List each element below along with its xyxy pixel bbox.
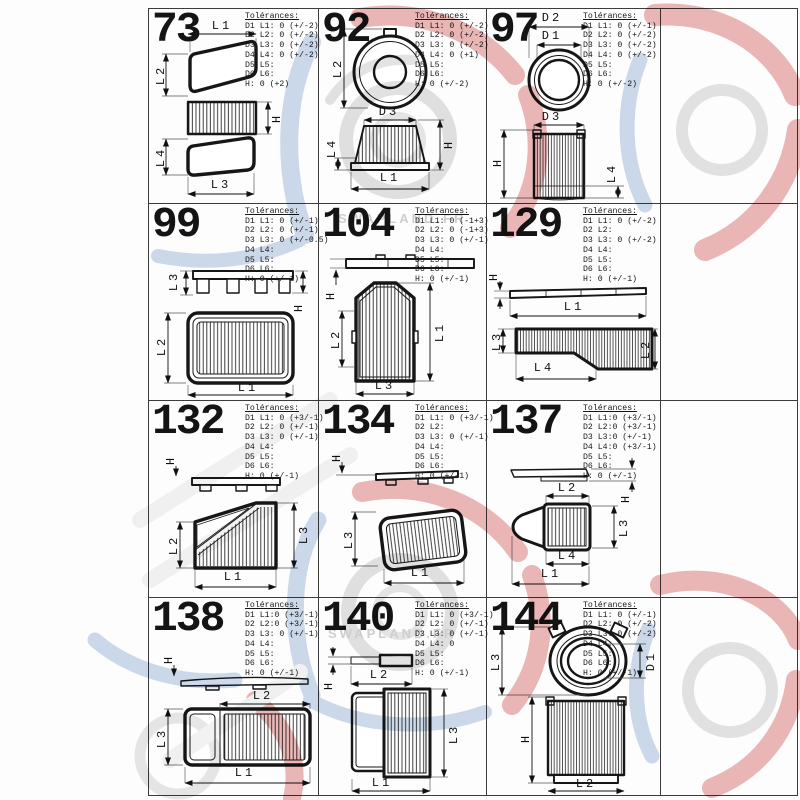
dim-label: H (442, 139, 456, 149)
tolerance-row: D4 L4: (583, 246, 661, 256)
dim-label: D1 (542, 29, 562, 43)
tolerance-row: D6 L6: (245, 70, 323, 80)
tolerance-row: H: 0 (+/-1) (583, 472, 661, 482)
tolerance-row: D2 L2: 0 (+/-2) (583, 620, 661, 630)
catalog-page: { "labels": { "tolerances_header": "Tolé… (0, 0, 800, 800)
tolerance-header: Tolérances: (245, 601, 323, 611)
dim-label: L3 (617, 517, 631, 537)
dim-label: L1 (235, 766, 255, 780)
dim-label: D2 (542, 11, 562, 25)
dim-label: D3 (542, 110, 562, 124)
tolerance-row: D6 L6: (245, 462, 323, 472)
tolerance-header: Tolérances: (415, 207, 493, 217)
tolerance-row: D3 L3: 0 (+/-2) (245, 41, 323, 51)
tolerance-row: D6 L6: (415, 265, 493, 275)
grid-hline (148, 795, 798, 796)
dim-label: L3 (342, 529, 356, 549)
cell-137: H L2 L3 L4 L1 137 Tolérances: D1 L1:0 (+… (486, 400, 660, 597)
tolerance-header: Tolérances: (245, 12, 323, 22)
dim-label: L1 (224, 570, 244, 584)
tolerance-row: D4 L4: (415, 246, 493, 256)
tolerance-table: Tolérances: D1 L1: 0 (+/-1) D2 L2: 0 (+/… (583, 601, 661, 679)
tolerance-row: D2 L2: 0 (+/-2) (245, 31, 323, 41)
tolerance-row: D2 L2: 0 (+/-1) (415, 620, 493, 630)
tolerance-row: D4 L4: 0 (+1) (415, 51, 493, 61)
tolerance-row: D5 L5: (245, 453, 323, 463)
tolerance-row: D3 L3: 0 (+/-2) (415, 41, 493, 51)
dim-label: H (270, 113, 284, 123)
cell-140: H L2 L3 L1 140 Tolérances: D1 L1: 0 (+3/… (318, 597, 486, 795)
tolerance-row: D3 L3: 0 (+/-0.5) (245, 236, 323, 246)
tolerance-row: D3 L3: 0 (+/-1) (415, 236, 493, 246)
tolerance-table: Tolérances: D1 L1: 0 (+3/-1) D2 L2: 0 (+… (415, 601, 493, 679)
tolerance-header: Tolérances: (583, 207, 661, 217)
tolerance-row: D2 L2: 0 (+/-2) (583, 31, 661, 41)
dim-label: L3 (489, 651, 503, 671)
dim-label: L3 (375, 379, 395, 393)
tolerance-row: D3 L3:0 (+/-1) (583, 433, 661, 443)
grid-vline (797, 8, 798, 796)
dim-label: L2 (370, 668, 390, 682)
tolerance-row: D5 L5: (583, 650, 661, 660)
dim-label: L1 (212, 19, 232, 33)
dim-label: H (619, 493, 633, 503)
tolerance-row: H: 0 (+/-2) (415, 80, 493, 90)
dim-label: L2 (331, 58, 345, 78)
tolerance-row: D1 L1: 0 (+/-2) (583, 217, 661, 227)
tolerance-row: D2 L2: 0 (+/-1) (245, 423, 323, 433)
tolerance-row: D2 L2: (583, 226, 661, 236)
tolerance-row: D6 L6: (245, 659, 323, 669)
tolerance-header: Tolérances: (583, 12, 661, 22)
dim-label: L1 (564, 300, 584, 314)
tolerance-header: Tolérances: (245, 207, 323, 217)
dim-label: H (322, 680, 336, 690)
tolerance-row: D4 L4: (245, 443, 323, 453)
tolerance-row: D3 L3: 0 (+/-2) (583, 236, 661, 246)
filter-number: 129 (490, 205, 561, 245)
tolerance-header: Tolérances: (415, 601, 493, 611)
tolerance-row: D5 L5: (583, 453, 661, 463)
cell-138: H L2 L3 L1 138 Tolérances: D1 L1:0 (+3/-… (148, 597, 318, 795)
tolerance-table: Tolérances: D1 L1: 0 (+3/-1) D2 L2: D3 L… (415, 404, 493, 482)
tolerance-row: D6 L6: (583, 659, 661, 669)
cell-99: L3 H L2 L1 99 Tolérances: D1 L1: 0 (+/-1… (148, 203, 318, 400)
tolerance-table: Tolérances: D1 L1: 0 (+/-2) D2 L2: 0 (+/… (245, 12, 323, 90)
dim-label: H (491, 157, 505, 167)
tolerance-row: D5 L5: (245, 256, 323, 266)
dim-label: L3 (297, 524, 311, 544)
dim-label: L2 (639, 339, 653, 359)
dim-label: L3 (211, 178, 231, 192)
tolerance-row: D5 L5: (583, 256, 661, 266)
tolerance-row: D6 L6: (245, 265, 323, 275)
tolerance-table: Tolérances: D1 L1: 0 (+/-1) D2 L2: 0 (+/… (245, 207, 323, 285)
tolerance-row: D6 L6: (415, 70, 493, 80)
tolerance-table: Tolérances: D1 L1: 0 (+3/-1) D2 L2: 0 (+… (245, 404, 323, 482)
tolerance-row: H: 0 (+/-2) (583, 80, 661, 90)
tolerance-row: H: 0 (+/-1) (415, 669, 493, 679)
cell-134: H L3 L1 134 Tolérances: D1 L1: 0 (+3/-1)… (318, 400, 486, 597)
tolerance-header: Tolérances: (245, 404, 323, 414)
tolerance-row: D5 L5: (415, 256, 493, 266)
dim-label: L1 (372, 776, 392, 790)
tolerance-row: D2 L2:0 (+3/-1) (245, 620, 323, 630)
dim-label: H (292, 302, 306, 312)
dim-label: L3 (490, 331, 504, 351)
tolerance-row: D3 L3: 0 (+/-1) (415, 630, 493, 640)
dim-label: L4 (605, 163, 619, 183)
tolerance-row: H: 0 (+/-1) (245, 669, 323, 679)
tolerance-table: Tolérances: D1 L1:0 (+3/-1) D2 L2:0 (+3/… (245, 601, 323, 679)
tolerance-row: D5 L5: (415, 650, 493, 660)
tolerance-row: D1 L1:0 (+3/-1) (245, 611, 323, 621)
tolerance-header: Tolérances: (415, 12, 493, 22)
tolerance-row: D4 L4: 0 (+/-2) (583, 51, 661, 61)
tolerance-row: H: 0 (+/-1) (583, 275, 661, 285)
tolerance-row: D4 L4: (245, 246, 323, 256)
tolerance-table: Tolérances: D1 L1: 0 (+/-1) D2 L2: 0 (+/… (583, 12, 661, 90)
tolerance-header: Tolérances: (583, 404, 661, 414)
filter-number: 134 (322, 402, 393, 442)
tolerance-row: D2 L2:0 (+3/-1) (583, 423, 661, 433)
tolerance-row: D4 L4: (415, 443, 493, 453)
tolerance-table: Tolérances: D1 L1: 0 (+/-2) D2 L2: 0 (+/… (415, 12, 493, 90)
dim-label: L1 (433, 322, 447, 342)
dim-label: L3 (447, 724, 461, 744)
filter-number: 92 (322, 10, 370, 50)
dim-label: L2 (576, 777, 596, 791)
tolerance-row: D1 L1: 0 (-1+3) (415, 217, 493, 227)
filter-number: 138 (152, 599, 223, 639)
dim-label: L4 (325, 138, 339, 158)
tolerance-row: H: 0 (+/-1) (583, 669, 661, 679)
tolerance-row: D4 L4: (245, 640, 323, 650)
tolerance-table: Tolérances: D1 L1: 0 (+/-2) D2 L2: D3 L3… (583, 207, 661, 285)
dim-label: L3 (155, 728, 169, 748)
tolerance-row: H: 0 (+2) (245, 80, 323, 90)
dim-label: L1 (411, 566, 431, 580)
filter-number: 140 (322, 599, 393, 639)
dim-label: H (330, 452, 344, 462)
tolerance-row: D1 L1: 0 (+3/-1) (415, 611, 493, 621)
dim-label: L2 (329, 329, 343, 349)
cell-132: H L2 L3 L1 132 Tolérances: D1 L1: 0 (+3/… (148, 400, 318, 597)
dim-label: L4 (534, 361, 554, 375)
tolerance-row: D6 L6: (415, 659, 493, 669)
tolerance-row: H: 0 (+/-1) (245, 275, 323, 285)
filter-number: 104 (322, 205, 393, 245)
tolerance-row: D4 L4:0 (+3/-1) (583, 443, 661, 453)
tolerance-row: D2 L2: 0 (+/-2) (415, 31, 493, 41)
tolerance-row: D6 L6: (583, 70, 661, 80)
tolerance-row: D6 L6: (583, 265, 661, 275)
dim-label: L2 (155, 336, 169, 356)
tolerance-row: D2 L2: 0 (-1+3) (415, 226, 493, 236)
tolerance-row: D1 L1: 0 (+/-1) (583, 611, 661, 621)
dim-label: H (162, 654, 176, 664)
tolerance-row: D4 L4: (583, 640, 661, 650)
dim-label: H (324, 290, 338, 300)
tolerance-header: Tolérances: (415, 404, 493, 414)
tolerance-row: D3 L3: 0 (+/-1) (245, 433, 323, 443)
tolerance-row: D3 L3: 0 (+/-2) (583, 630, 661, 640)
tolerance-table: Tolérances: D1 L1:0 (+3/-1) D2 L2:0 (+3/… (583, 404, 661, 482)
filter-number: 97 (490, 10, 538, 50)
filter-number: 137 (490, 402, 561, 442)
dim-label: L1 (238, 381, 258, 395)
dim-label: L2 (558, 481, 578, 495)
tolerance-row: D6 L6: (583, 462, 661, 472)
tolerance-row: H: 0 (+/-1) (245, 472, 323, 482)
tolerance-row: D3 L3: 0 (+/-1) (415, 433, 493, 443)
tolerance-row: H: 0 (+/-1) (415, 472, 493, 482)
cell-129: H L1 L3 L4 L2 129 Tolérances: D1 L1: 0 (… (486, 203, 660, 400)
tolerance-row: D1 L1:0 (+3/-1) (583, 414, 661, 424)
filter-number: 99 (152, 205, 200, 245)
dim-label: L4 (154, 147, 168, 167)
tolerance-row: D6 L6: (415, 462, 493, 472)
tolerance-row: D4 L4: 0 (+/-2) (245, 51, 323, 61)
tolerance-row: D3 L3: 0 (+/-2) (583, 41, 661, 51)
tolerance-row: D5 L5: (583, 61, 661, 71)
dim-label: D3 (379, 105, 399, 119)
filter-number: 73 (152, 10, 200, 50)
tolerance-row: D2 L2: 0 (+/-1) (245, 226, 323, 236)
tolerance-row: D3 L3: 0 (+/-1) (245, 630, 323, 640)
tolerance-row: D4 L4: 0 (415, 640, 493, 650)
dim-label: L4 (558, 549, 578, 563)
dim-label: L3 (167, 271, 181, 291)
dim-label: H (487, 271, 501, 281)
tolerance-row: D1 L1: 0 (+/-2) (245, 22, 323, 32)
tolerance-row: D1 L1: 0 (+/-2) (415, 22, 493, 32)
dim-label: H (519, 733, 533, 743)
tolerance-row: D5 L5: (415, 61, 493, 71)
dim-label: L2 (253, 689, 273, 703)
tolerance-row: D1 L1: 0 (+/-1) (583, 22, 661, 32)
tolerance-row: D5 L5: (245, 650, 323, 660)
dim-label: L1 (380, 171, 400, 185)
dim-label: L2 (154, 65, 168, 85)
tolerance-header: Tolérances: (583, 601, 661, 611)
filter-number: 132 (152, 402, 223, 442)
cell-73: L1 L2 H L4 L3 73 Tolérances: D1 L1: 0 (+… (148, 8, 318, 203)
cell-104: H L2 L1 L3 104 Tolérances: D1 L1: 0 (-1+… (318, 203, 486, 400)
cell-92: L2 D3 L4 H L1 92 Tolérances: D1 L1: 0 (+… (318, 8, 486, 203)
tolerance-row: D1 L1: 0 (+3/-1) (245, 414, 323, 424)
tolerance-row: D2 L2: (415, 423, 493, 433)
tolerance-row: D1 L1: 0 (+/-1) (245, 217, 323, 227)
cell-144: L3 D1 H L2 144 Tolérances: D1 L1: 0 (+/-… (486, 597, 660, 795)
dim-label: L2 (167, 535, 181, 555)
tolerance-row: D5 L5: (245, 61, 323, 71)
tolerance-row: D5 L5: (415, 453, 493, 463)
tolerance-table: Tolérances: D1 L1: 0 (-1+3) D2 L2: 0 (-1… (415, 207, 493, 285)
dim-label: L1 (541, 567, 561, 581)
filter-number: 144 (490, 599, 561, 639)
tolerance-row: D1 L1: 0 (+3/-1) (415, 414, 493, 424)
cell-97: D2 D1 D3 H L4 97 Tolérances: D1 L1: 0 (+… (486, 8, 660, 203)
dim-label: H (164, 455, 178, 465)
tolerance-row: H: 0 (+/-1) (415, 275, 493, 285)
